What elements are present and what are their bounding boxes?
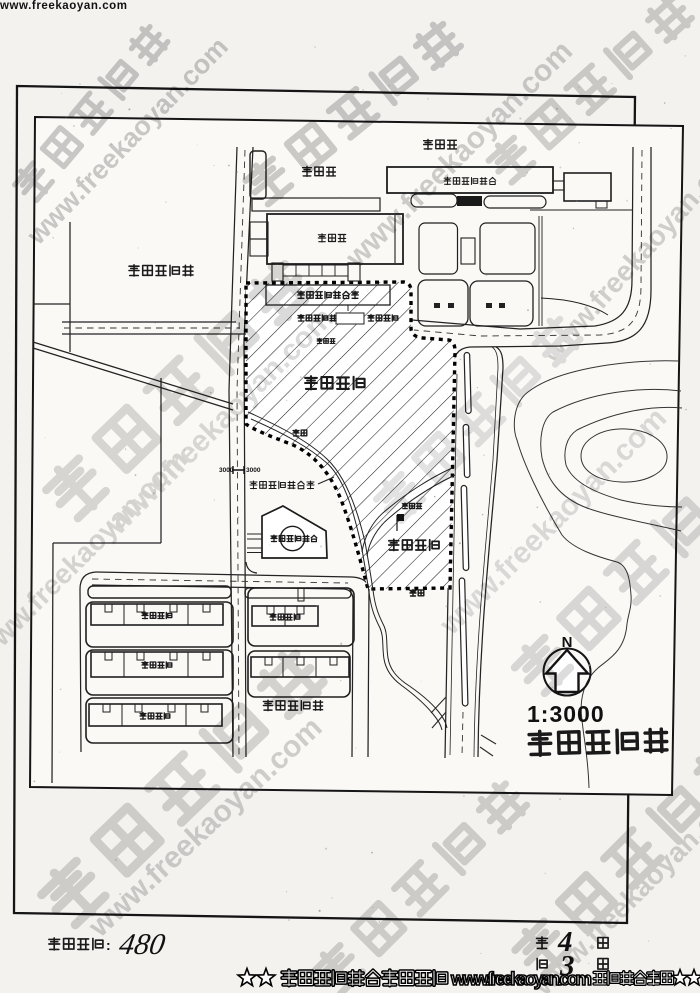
svg-text:3000: 3000 [219, 467, 234, 474]
svg-text:N: N [562, 634, 573, 651]
svg-text:1:3000: 1:3000 [527, 701, 605, 727]
svg-text:480: 480 [117, 927, 168, 961]
svg-text:3000: 3000 [246, 467, 261, 474]
svg-text:www.freekaoyan.com: www.freekaoyan.com [0, 0, 127, 12]
